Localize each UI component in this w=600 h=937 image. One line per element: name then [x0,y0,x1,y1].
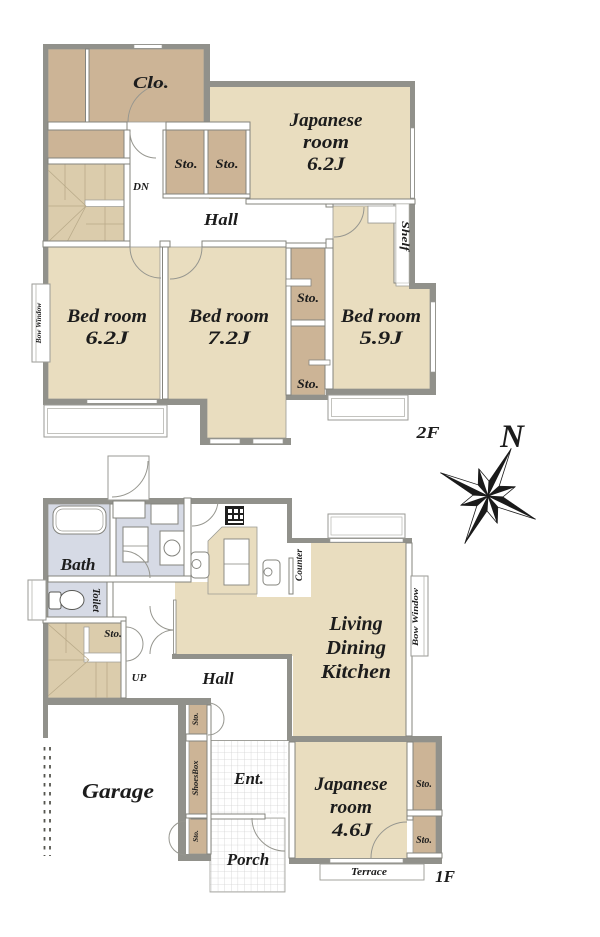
svg-text:6.2J: 6.2J [86,328,130,349]
svg-text:Bath: Bath [59,555,95,574]
svg-text:Kitchen: Kitchen [320,661,391,683]
svg-text:Sto.: Sto. [297,376,319,391]
svg-text:Sto.: Sto. [191,713,200,726]
svg-text:Ent.: Ent. [233,769,264,788]
svg-text:Terrace: Terrace [351,866,387,878]
svg-text:Sto.: Sto. [416,835,432,846]
svg-text:room: room [330,797,372,818]
svg-text:Toilet: Toilet [90,588,101,613]
svg-text:DN: DN [132,181,150,193]
svg-text:4.6J: 4.6J [331,820,373,841]
svg-text:5.9J: 5.9J [360,328,404,349]
svg-text:Sto.: Sto. [416,779,432,790]
svg-text:Japanese: Japanese [289,110,363,131]
svg-text:Bow Window: Bow Window [34,302,43,345]
svg-text:2F: 2F [415,423,440,442]
svg-text:Bow Window: Bow Window [410,588,420,648]
svg-text:Living: Living [328,613,382,635]
svg-text:ShoesBox: ShoesBox [190,760,200,796]
svg-text:1F: 1F [435,867,456,886]
svg-text:Porch: Porch [226,850,270,869]
svg-text:6.2J: 6.2J [307,154,346,175]
svg-text:Garage: Garage [82,779,154,803]
svg-text:Bed room: Bed room [66,306,147,327]
svg-text:Bed room: Bed room [340,306,421,327]
svg-text:Sto.: Sto. [175,156,198,171]
svg-text:Japanese: Japanese [314,774,388,795]
svg-text:UP: UP [132,672,147,684]
svg-text:Sto.: Sto. [191,830,200,842]
svg-text:Sto.: Sto. [104,628,121,640]
svg-text:N: N [499,419,525,455]
svg-text:Bed room: Bed room [188,306,269,327]
svg-text:Counter: Counter [295,549,305,582]
svg-text:Dining: Dining [325,637,386,659]
svg-text:room: room [303,132,349,153]
svg-text:Clo.: Clo. [133,73,169,92]
svg-text:Sto.: Sto. [216,156,239,171]
svg-text:Hall: Hall [201,669,233,688]
svg-text:Shelf: Shelf [399,221,410,253]
svg-text:Sto.: Sto. [297,290,319,305]
svg-text:Hall: Hall [203,210,238,229]
svg-text:7.2J: 7.2J [208,328,252,349]
